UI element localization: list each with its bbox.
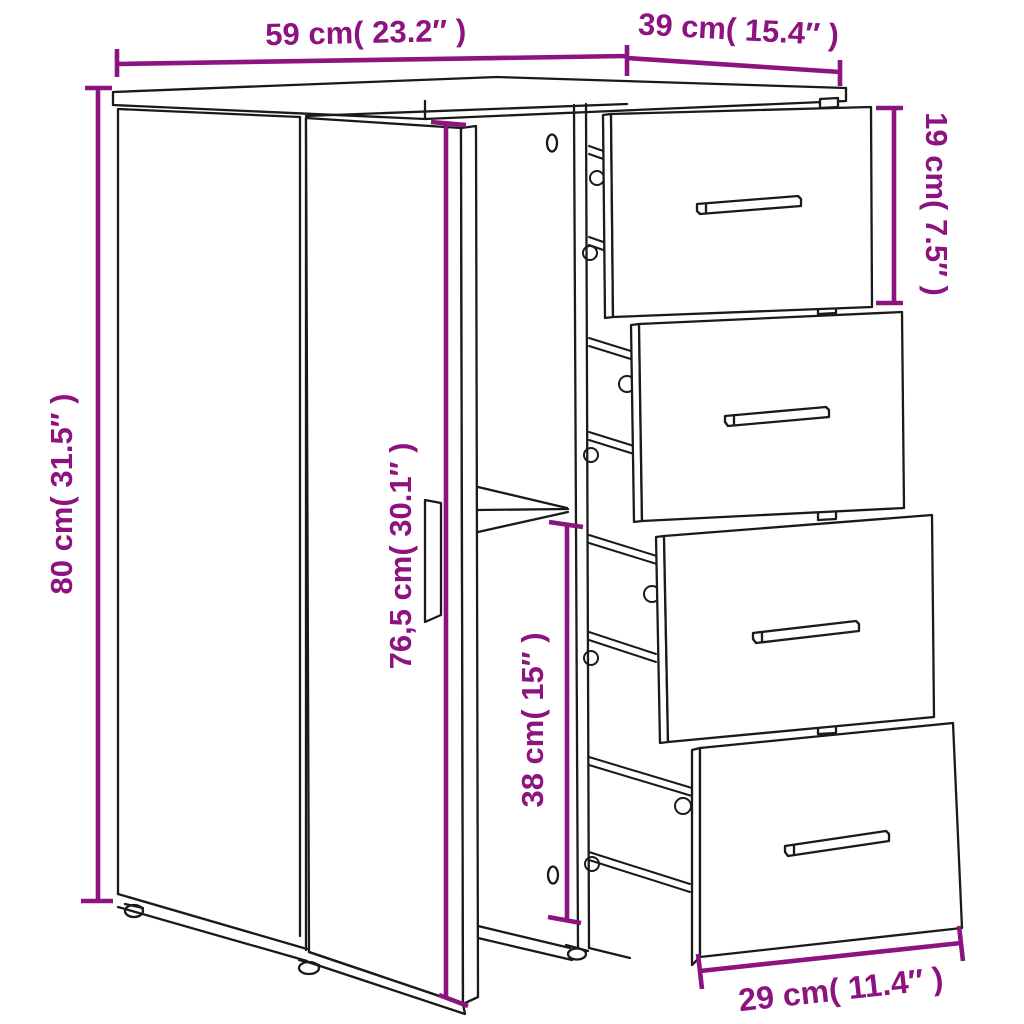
- left-side-panel: [118, 109, 307, 961]
- drawer-3: [656, 515, 934, 743]
- dimension-depth: 39 cm( 15.4″ ): [627, 6, 840, 86]
- diagram-canvas: 59 cm( 23.2″ ) 39 cm( 15.4″ ) 80 cm( 31.…: [0, 0, 1024, 1024]
- dimension-label-width: 59 cm( 23.2″ ): [265, 13, 467, 53]
- dimension-label-height: 80 cm( 31.5″ ): [44, 394, 79, 595]
- drawer-1: [603, 107, 872, 318]
- dimension-width: 59 cm( 23.2″ ): [117, 13, 627, 77]
- dimension-height: 80 cm( 31.5″ ): [44, 88, 113, 901]
- drawer-2: [631, 312, 904, 522]
- interior-bottom: [478, 926, 630, 960]
- furniture-dimension-diagram: 59 cm( 23.2″ ) 39 cm( 15.4″ ) 80 cm( 31.…: [0, 0, 1024, 1024]
- dimension-label-drawer-width: 29 cm( 11.4″ ): [737, 960, 945, 1018]
- drawer-4: [692, 723, 962, 965]
- carcass-top-edge: [306, 104, 627, 116]
- dimension-label-door-height: 76,5 cm( 30.1″ ): [383, 443, 418, 670]
- dimension-top-drawer-height: 19 cm( 7.5″ ): [876, 108, 954, 303]
- dimension-compartment-height: 38 cm( 15″ ): [515, 522, 583, 923]
- dimension-label-top-drawer-height: 19 cm( 7.5″ ): [919, 112, 954, 296]
- interior-shelf: [478, 487, 568, 532]
- dimension-label-depth: 39 cm( 15.4″ ): [637, 6, 840, 52]
- dimension-label-compartment-height: 38 cm( 15″ ): [515, 632, 550, 807]
